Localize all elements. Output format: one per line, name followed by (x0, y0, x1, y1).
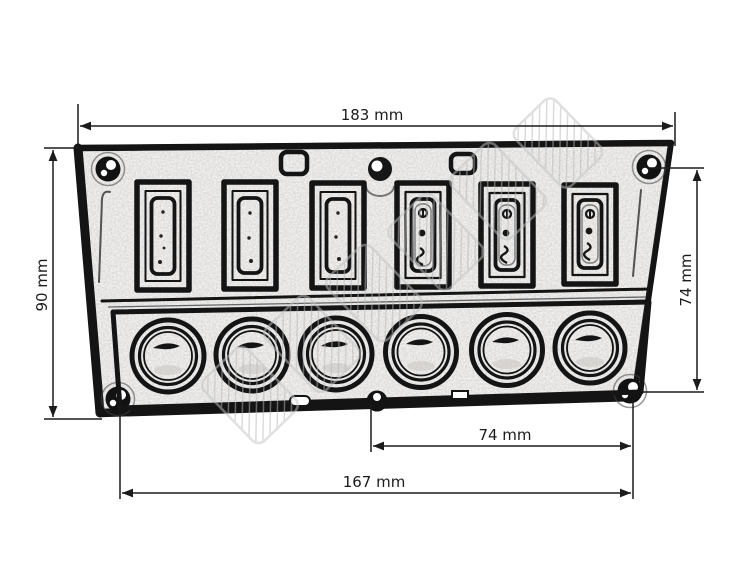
dim-label-screw-span-vertical: 74 mm (677, 253, 695, 306)
corner-screw-top-left (92, 153, 125, 186)
technical-drawing-canvas: 183 mm 90 mm 74 mm 74 mm 167 mm (0, 0, 750, 562)
dim-label-screw-span-horizontal: 167 mm (343, 473, 406, 491)
dim-label-overall-height: 90 mm (33, 258, 51, 311)
dim-label-center-to-screw: 74 mm (478, 426, 531, 444)
corner-screw-top-right (633, 151, 666, 184)
dim-label-overall-width: 183 mm (341, 106, 404, 124)
bottom-step-right (452, 391, 468, 399)
bottom-center-notch (367, 391, 388, 412)
